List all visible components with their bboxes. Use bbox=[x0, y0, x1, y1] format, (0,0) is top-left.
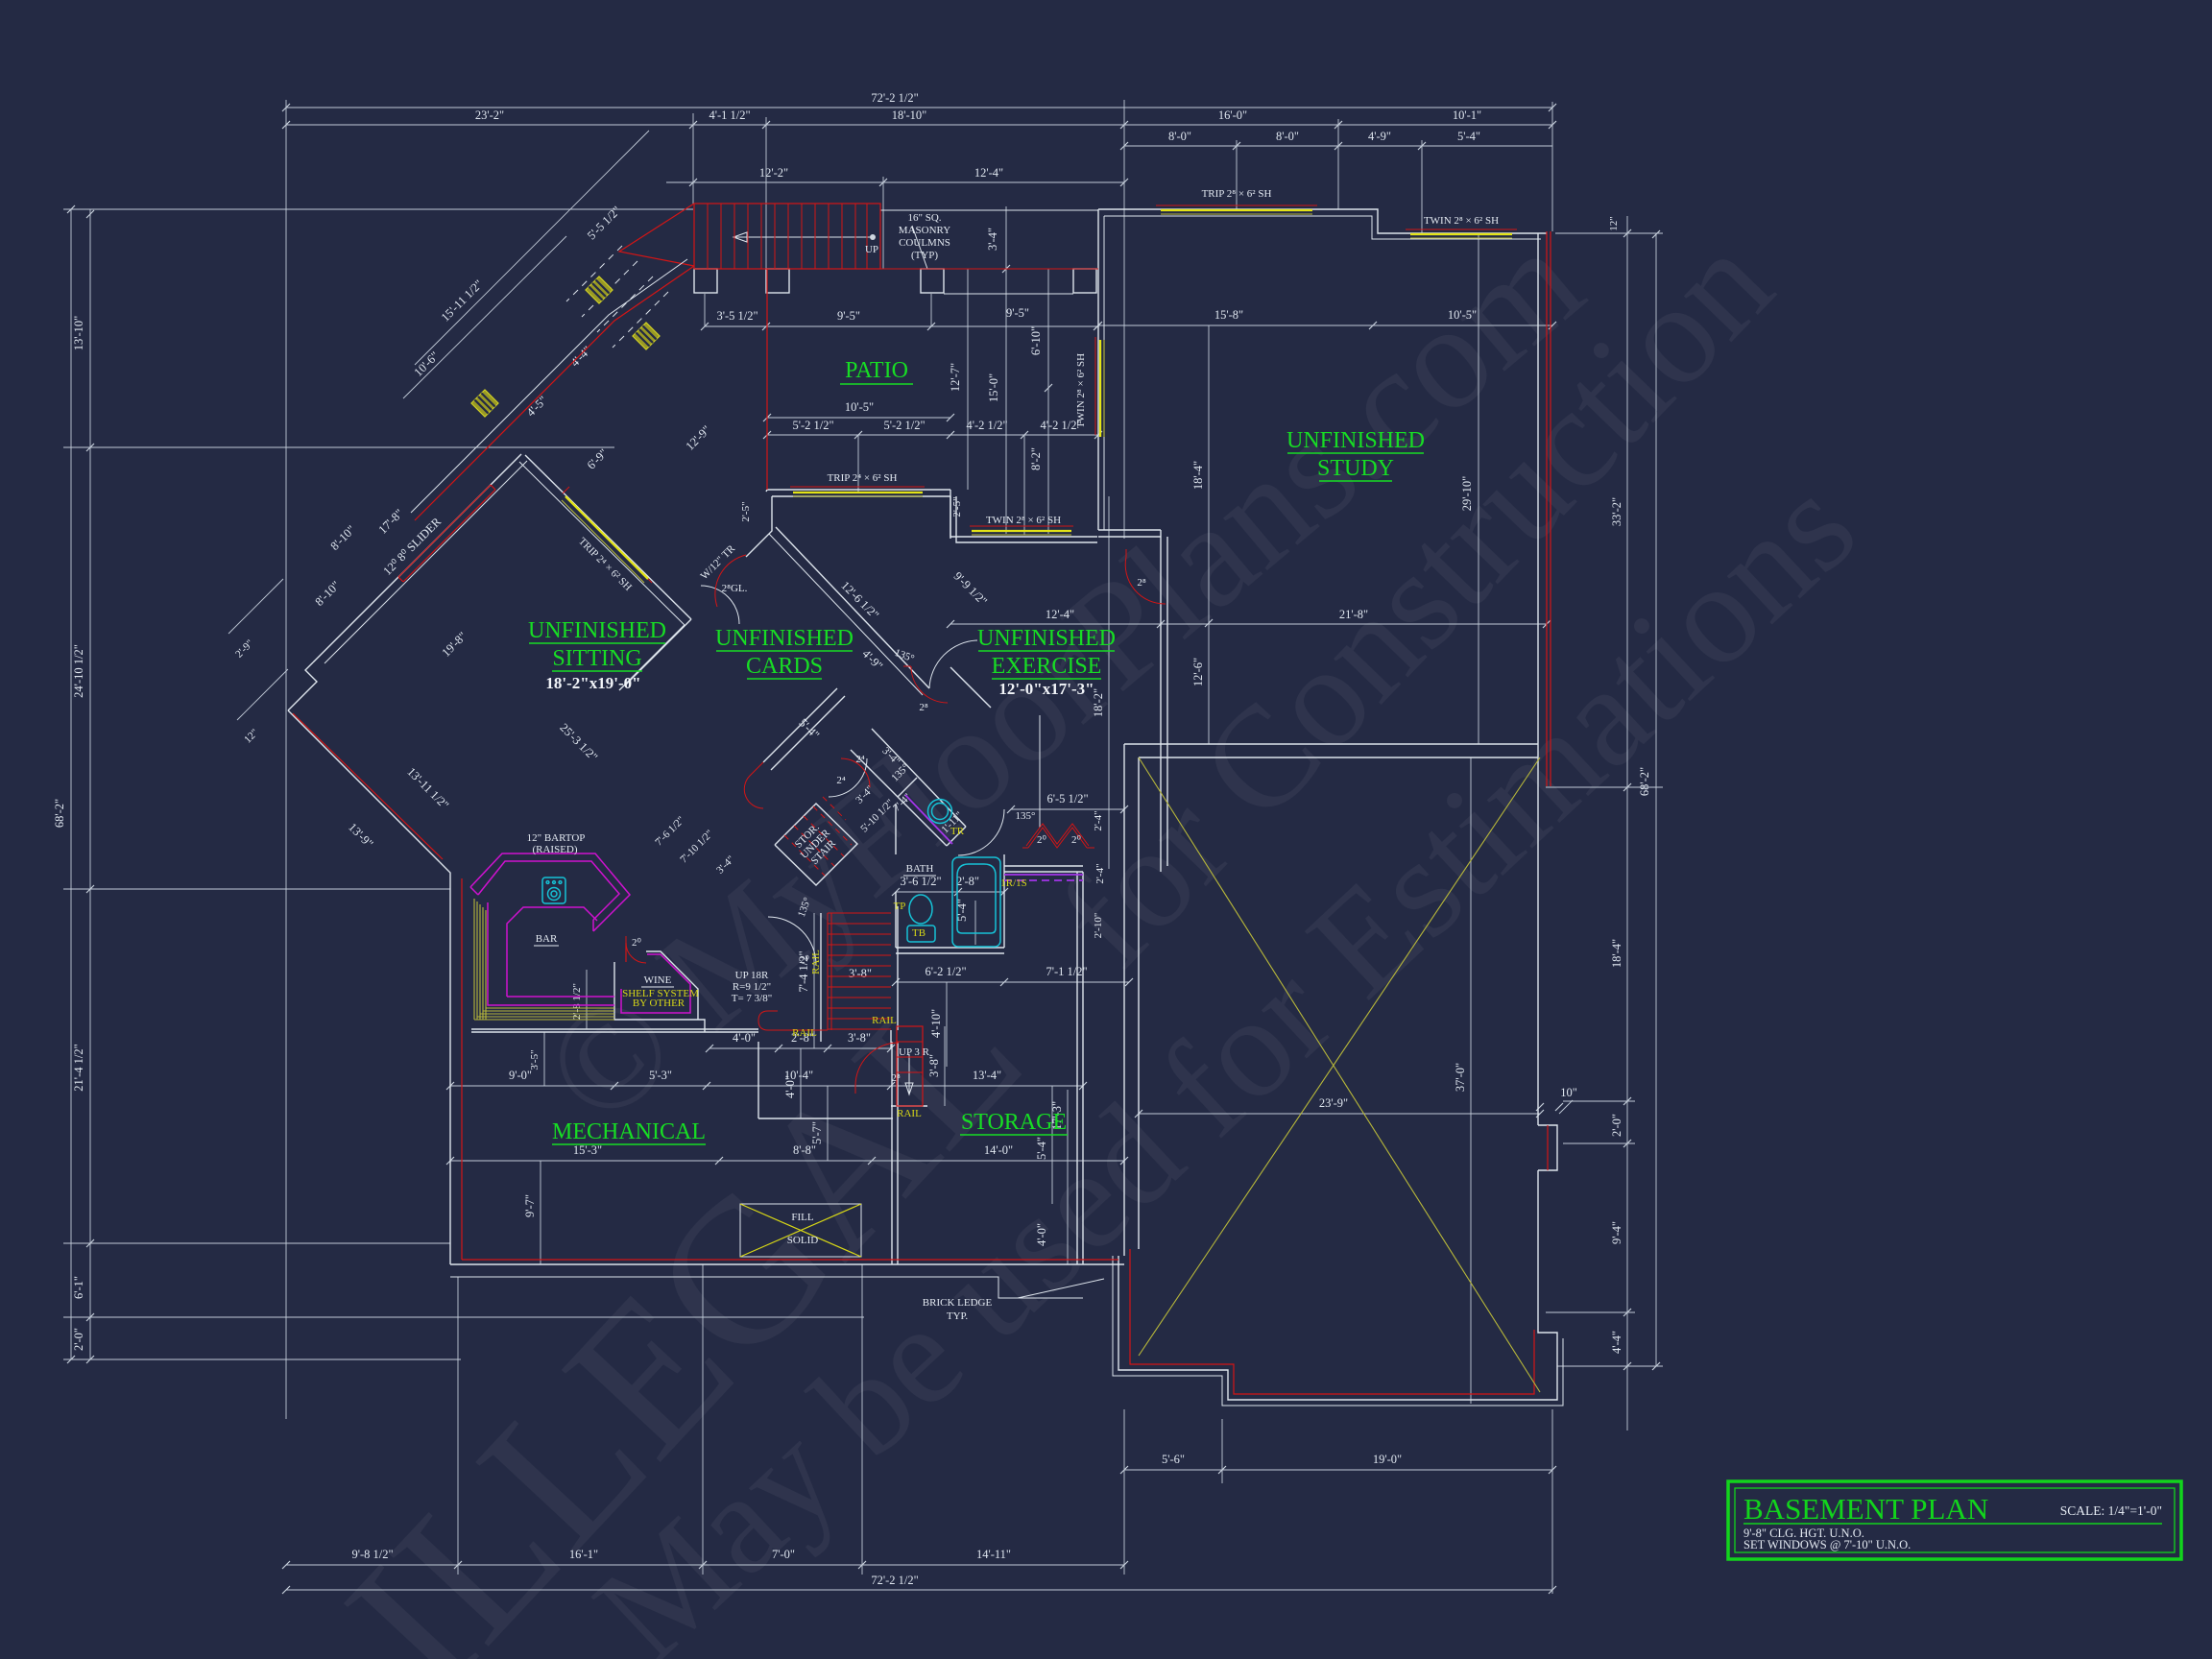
svg-text:TYP.: TYP. bbox=[947, 1310, 969, 1322]
svg-text:16'-1": 16'-1" bbox=[569, 1548, 598, 1561]
svg-text:2⁰: 2⁰ bbox=[632, 937, 642, 949]
svg-text:SOLID: SOLID bbox=[787, 1235, 818, 1246]
svg-text:23'-9": 23'-9" bbox=[1319, 1096, 1348, 1110]
svg-text:UNFINISHED: UNFINISHED bbox=[715, 626, 854, 651]
svg-text:12'-7": 12'-7" bbox=[949, 363, 962, 392]
svg-text:8'-0": 8'-0" bbox=[1168, 130, 1191, 143]
svg-text:9'-7": 9'-7" bbox=[523, 1194, 537, 1217]
svg-text:2'-10": 2'-10" bbox=[1093, 913, 1104, 939]
svg-text:3'-5 1/2": 3'-5 1/2" bbox=[716, 309, 757, 323]
svg-text:7'-0": 7'-0" bbox=[772, 1548, 795, 1561]
svg-text:TB: TB bbox=[912, 927, 926, 939]
svg-text:12'-4": 12'-4" bbox=[974, 166, 1003, 180]
svg-text:9'-5": 9'-5" bbox=[1006, 306, 1029, 320]
svg-text:12'-0"x17'-3": 12'-0"x17'-3" bbox=[998, 680, 1094, 698]
svg-text:2'-8": 2'-8" bbox=[956, 875, 979, 888]
svg-text:UNFINISHED: UNFINISHED bbox=[1286, 428, 1425, 453]
svg-text:12'-2": 12'-2" bbox=[759, 166, 788, 180]
svg-text:12": 12" bbox=[1608, 216, 1620, 231]
svg-text:6'-1": 6'-1" bbox=[72, 1276, 85, 1299]
svg-text:2⁸GL.: 2⁸GL. bbox=[722, 583, 748, 594]
svg-text:68'-2": 68'-2" bbox=[53, 799, 66, 828]
svg-text:3'-4": 3'-4" bbox=[986, 228, 999, 251]
svg-text:TWIN 2⁸ × 6² SH: TWIN 2⁸ × 6² SH bbox=[1075, 353, 1087, 428]
svg-text:2⁸: 2⁸ bbox=[1137, 577, 1146, 589]
svg-text:37'-0": 37'-0" bbox=[1454, 1063, 1467, 1092]
svg-text:15'-0": 15'-0" bbox=[987, 373, 1000, 402]
svg-text:5'-4": 5'-4" bbox=[1035, 1137, 1048, 1160]
svg-text:10'-1": 10'-1" bbox=[1453, 108, 1481, 122]
svg-text:TRIP 2⁴ × 6² SH: TRIP 2⁴ × 6² SH bbox=[828, 472, 898, 484]
svg-text:STUDY: STUDY bbox=[1317, 456, 1394, 481]
svg-text:3'-5": 3'-5" bbox=[529, 1049, 541, 1070]
svg-text:FILL: FILL bbox=[791, 1212, 814, 1223]
svg-text:5'-4": 5'-4" bbox=[1457, 130, 1480, 143]
svg-text:2⁸: 2⁸ bbox=[919, 702, 928, 713]
svg-text:8'-8": 8'-8" bbox=[793, 1143, 816, 1157]
svg-text:TR: TR bbox=[950, 826, 965, 837]
svg-text:2'-5": 2'-5" bbox=[740, 501, 752, 521]
svg-text:WINE: WINE bbox=[644, 974, 672, 986]
svg-text:6'-5 1/2": 6'-5 1/2" bbox=[1046, 792, 1088, 805]
svg-text:4'-1 1/2": 4'-1 1/2" bbox=[709, 108, 750, 122]
svg-text:18'-4": 18'-4" bbox=[1610, 939, 1623, 968]
svg-text:2⁴: 2⁴ bbox=[836, 775, 846, 786]
svg-text:BATH: BATH bbox=[906, 863, 934, 875]
svg-text:9'-5": 9'-5" bbox=[837, 309, 860, 323]
svg-text:PATIO: PATIO bbox=[845, 358, 908, 383]
svg-text:3'-6 1/2": 3'-6 1/2" bbox=[900, 875, 941, 888]
svg-text:6'-2 1/2": 6'-2 1/2" bbox=[925, 965, 966, 978]
svg-text:BASEMENT PLAN: BASEMENT PLAN bbox=[1743, 1492, 1988, 1526]
svg-text:4'-0": 4'-0" bbox=[1035, 1223, 1048, 1246]
svg-text:15'-3": 15'-3" bbox=[573, 1143, 602, 1157]
svg-text:12'-6": 12'-6" bbox=[1191, 658, 1205, 686]
svg-text:RAIL: RAIL bbox=[792, 1027, 817, 1039]
svg-text:2'-0": 2'-0" bbox=[72, 1328, 85, 1351]
svg-text:5'-2 1/2": 5'-2 1/2" bbox=[792, 419, 833, 432]
svg-text:SCALE: 1/4"=1'-0": SCALE: 1/4"=1'-0" bbox=[2060, 1503, 2162, 1518]
svg-text:(TYP): (TYP) bbox=[911, 250, 938, 261]
svg-text:12'-4": 12'-4" bbox=[1046, 608, 1074, 621]
svg-text:9'-4": 9'-4" bbox=[1610, 1221, 1623, 1244]
svg-text:1R/1S: 1R/1S bbox=[1000, 878, 1027, 889]
svg-text:10'-5": 10'-5" bbox=[1448, 308, 1477, 322]
svg-text:TP: TP bbox=[894, 901, 906, 912]
svg-text:7'-1 1/2": 7'-1 1/2" bbox=[1046, 965, 1087, 978]
svg-text:T= 7 3/8": T= 7 3/8" bbox=[732, 993, 772, 1004]
svg-text:5'-6": 5'-6" bbox=[1162, 1453, 1185, 1466]
svg-text:72'-2 1/2": 72'-2 1/2" bbox=[871, 1574, 918, 1587]
svg-text:24'-10 1/2": 24'-10 1/2" bbox=[72, 644, 85, 698]
svg-text:3'-8": 3'-8" bbox=[849, 967, 872, 980]
svg-text:4'-4": 4'-4" bbox=[1610, 1331, 1623, 1354]
svg-text:18'-10": 18'-10" bbox=[892, 108, 927, 122]
svg-text:15'-8": 15'-8" bbox=[1214, 308, 1243, 322]
svg-text:9'-8 1/2": 9'-8 1/2" bbox=[351, 1548, 393, 1561]
svg-text:4'-9": 4'-9" bbox=[1368, 130, 1391, 143]
svg-text:UP 3 R: UP 3 R bbox=[899, 1046, 930, 1058]
svg-text:EXERCISE: EXERCISE bbox=[992, 654, 1102, 679]
svg-text:COULMNS: COULMNS bbox=[899, 237, 950, 249]
svg-text:8'-2": 8'-2" bbox=[1029, 447, 1043, 470]
svg-text:UNFINISHED: UNFINISHED bbox=[977, 626, 1116, 651]
svg-text:16'-0": 16'-0" bbox=[1218, 108, 1247, 122]
svg-text:10'-5": 10'-5" bbox=[845, 400, 874, 414]
svg-text:2'-5": 2'-5" bbox=[951, 496, 963, 517]
svg-text:18'-2"x19'-0": 18'-2"x19'-0" bbox=[545, 674, 640, 692]
svg-text:R=9 1/2": R=9 1/2" bbox=[733, 981, 771, 993]
svg-text:2'-4": 2'-4" bbox=[1094, 863, 1106, 883]
svg-text:4'-10": 4'-10" bbox=[929, 1009, 943, 1038]
svg-text:3'-8": 3'-8" bbox=[848, 1031, 871, 1045]
svg-text:4'-0": 4'-0" bbox=[733, 1031, 756, 1045]
svg-text:(RAISED): (RAISED) bbox=[532, 844, 577, 855]
svg-text:68'-2": 68'-2" bbox=[1638, 767, 1651, 796]
svg-text:16" SQ.: 16" SQ. bbox=[907, 212, 941, 224]
svg-text:19'-0": 19'-0" bbox=[1373, 1453, 1402, 1466]
svg-text:18'-4": 18'-4" bbox=[1191, 461, 1205, 490]
svg-text:RAIL: RAIL bbox=[810, 950, 822, 974]
svg-text:4'-0": 4'-0" bbox=[783, 1075, 797, 1098]
svg-text:2'-0": 2'-0" bbox=[1610, 1114, 1623, 1137]
svg-text:UP: UP bbox=[865, 244, 878, 255]
svg-text:6'-10": 6'-10" bbox=[1029, 326, 1043, 355]
svg-text:CARDS: CARDS bbox=[746, 654, 823, 679]
svg-text:4'-2 1/2": 4'-2 1/2" bbox=[966, 419, 1007, 432]
svg-text:8'-0": 8'-0" bbox=[1276, 130, 1299, 143]
svg-text:BY OTHER: BY OTHER bbox=[633, 998, 685, 1009]
svg-text:13'-10": 13'-10" bbox=[72, 316, 85, 351]
svg-text:SITTING: SITTING bbox=[552, 646, 641, 671]
svg-text:RAIL: RAIL bbox=[897, 1108, 922, 1119]
svg-text:21'-4 1/2": 21'-4 1/2" bbox=[72, 1044, 85, 1091]
svg-text:23'-2": 23'-2" bbox=[475, 108, 504, 122]
svg-text:5'-3": 5'-3" bbox=[649, 1069, 672, 1082]
svg-text:14'-11": 14'-11" bbox=[976, 1548, 1011, 1561]
svg-text:5'-7": 5'-7" bbox=[810, 1121, 824, 1144]
svg-text:RAIL: RAIL bbox=[872, 1015, 897, 1026]
svg-text:TWIN 2⁸ × 6² SH: TWIN 2⁸ × 6² SH bbox=[986, 515, 1061, 526]
svg-text:TWIN 2⁸ × 6² SH: TWIN 2⁸ × 6² SH bbox=[1424, 215, 1499, 227]
svg-text:BAR: BAR bbox=[536, 933, 558, 945]
svg-text:MASONRY: MASONRY bbox=[899, 225, 950, 236]
svg-text:12" BARTOP: 12" BARTOP bbox=[527, 832, 586, 844]
svg-text:2⁰: 2⁰ bbox=[1071, 834, 1082, 846]
svg-text:UNFINISHED: UNFINISHED bbox=[528, 618, 666, 643]
svg-text:2⁰: 2⁰ bbox=[1037, 834, 1047, 846]
svg-text:3'-8": 3'-8" bbox=[927, 1054, 941, 1077]
svg-text:14'-0": 14'-0" bbox=[984, 1143, 1013, 1157]
svg-text:MECHANICAL: MECHANICAL bbox=[552, 1119, 706, 1144]
svg-text:33'-2": 33'-2" bbox=[1610, 497, 1623, 526]
svg-text:13'-4": 13'-4" bbox=[973, 1069, 1001, 1082]
svg-text:5'-2 1/2": 5'-2 1/2" bbox=[883, 419, 925, 432]
svg-text:10": 10" bbox=[1560, 1086, 1577, 1099]
svg-text:2⁸: 2⁸ bbox=[891, 1072, 901, 1084]
svg-text:135°: 135° bbox=[1016, 810, 1036, 822]
svg-text:2'-4": 2'-4" bbox=[1093, 810, 1104, 830]
svg-text:21'-8": 21'-8" bbox=[1339, 608, 1368, 621]
svg-text:SET WINDOWS @ 7'-10" U.N.O.: SET WINDOWS @ 7'-10" U.N.O. bbox=[1743, 1538, 1911, 1551]
svg-text:UP 18R: UP 18R bbox=[735, 970, 769, 981]
svg-text:BRICK LEDGE: BRICK LEDGE bbox=[923, 1297, 993, 1309]
svg-text:STORAGE: STORAGE bbox=[961, 1110, 1067, 1135]
svg-text:2⁰: 2⁰ bbox=[800, 954, 810, 966]
svg-text:29'-10": 29'-10" bbox=[1460, 476, 1474, 512]
svg-text:TRIP 2⁸ × 6² SH: TRIP 2⁸ × 6² SH bbox=[1202, 188, 1272, 200]
svg-text:72'-2 1/2": 72'-2 1/2" bbox=[871, 91, 918, 105]
svg-text:2⁴: 2⁴ bbox=[855, 754, 865, 765]
